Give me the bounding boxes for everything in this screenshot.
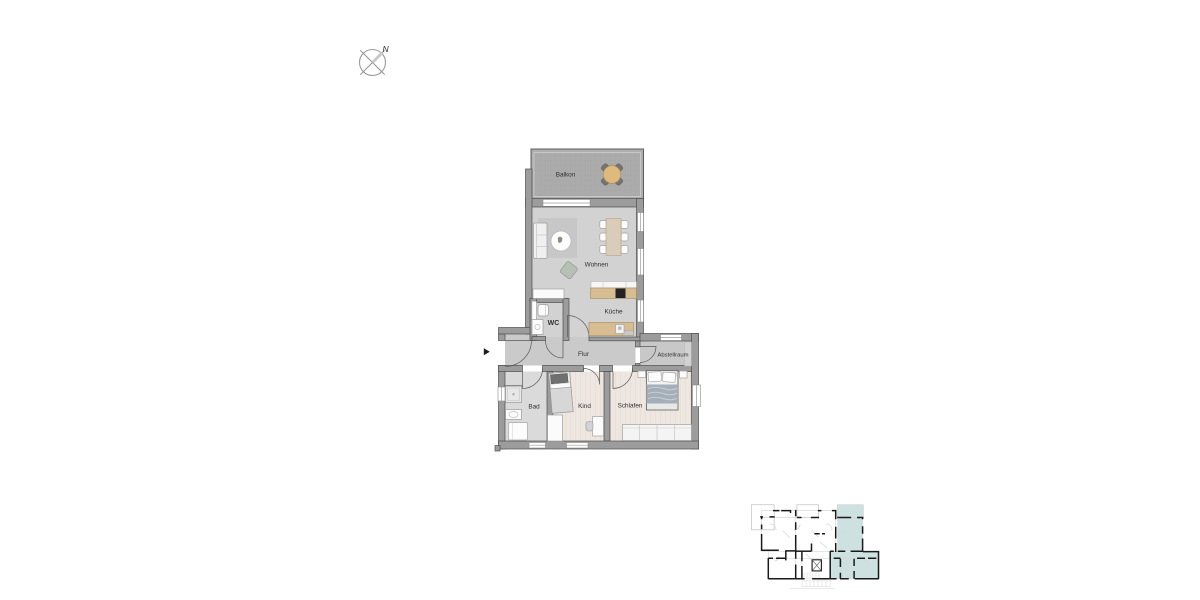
svg-text:Abstellraum: Abstellraum: [657, 353, 688, 359]
svg-text:Flur: Flur: [578, 351, 590, 358]
svg-text:Küche: Küche: [604, 309, 623, 316]
svg-text:Schlafen: Schlafen: [618, 403, 643, 410]
svg-text:WC: WC: [548, 320, 560, 327]
svg-text:Balkon: Balkon: [556, 172, 576, 179]
svg-text:Wohnen: Wohnen: [585, 262, 609, 269]
svg-text:N: N: [383, 44, 390, 54]
svg-text:Bad: Bad: [528, 404, 540, 411]
svg-text:Kind: Kind: [578, 403, 591, 410]
